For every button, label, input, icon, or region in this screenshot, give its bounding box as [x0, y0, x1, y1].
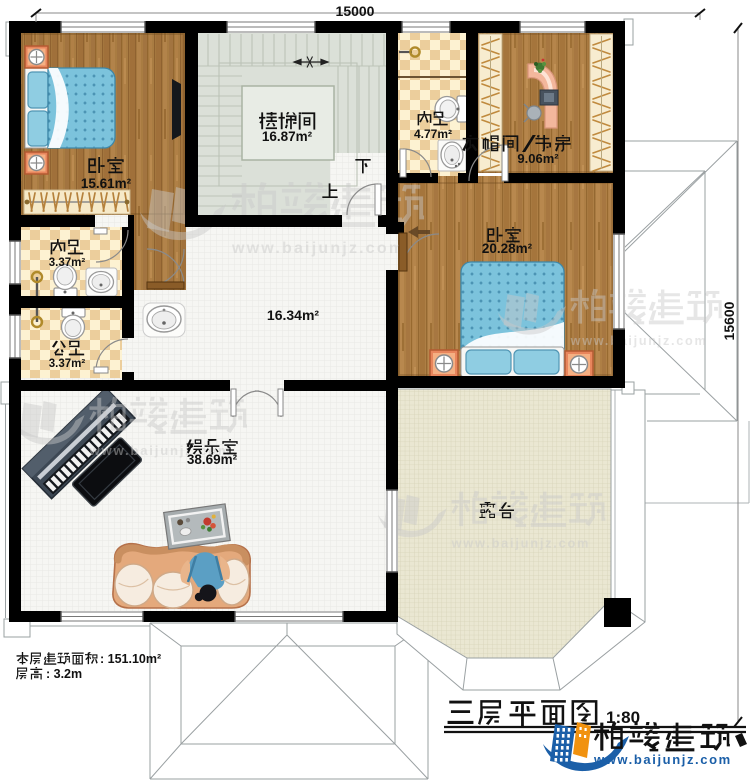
svg-text:3.37m²: 3.37m² [49, 358, 86, 370]
svg-text:16.87m²: 16.87m² [262, 129, 313, 144]
svg-text:9.06m²: 9.06m² [517, 151, 559, 166]
svg-text:15600: 15600 [721, 301, 737, 340]
svg-text:www.baijunjz.com: www.baijunjz.com [593, 752, 732, 767]
svg-text:38.69m²: 38.69m² [187, 452, 238, 467]
svg-text:www.baijunjz.com: www.baijunjz.com [231, 240, 405, 257]
svg-text:4.77m²: 4.77m² [414, 127, 452, 141]
svg-text:16.34m²: 16.34m² [267, 307, 319, 323]
svg-text:www.baijunjz.com: www.baijunjz.com [451, 536, 591, 551]
svg-text:15000: 15000 [336, 3, 375, 19]
svg-text:: 151.10m²: : 151.10m² [100, 652, 161, 666]
svg-text:20.28m²: 20.28m² [482, 241, 533, 256]
svg-text:www.baijunjz.com: www.baijunjz.com [570, 334, 708, 348]
svg-text:15.61m²: 15.61m² [81, 176, 132, 191]
svg-text:3.37m²: 3.37m² [49, 257, 86, 269]
svg-text:: 3.2m: : 3.2m [46, 667, 82, 681]
